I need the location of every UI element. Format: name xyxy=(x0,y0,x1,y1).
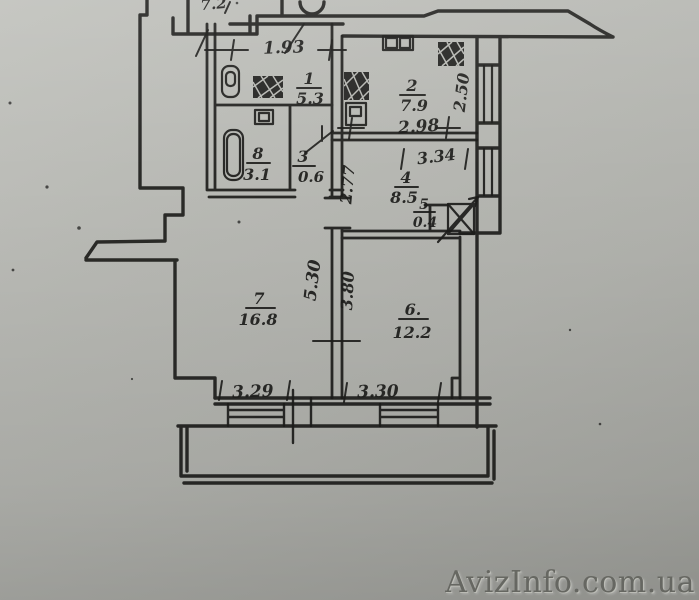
room-2-number: 2 xyxy=(405,76,417,95)
dim-kitchen-width: 2.98 xyxy=(396,116,440,139)
sink-icon xyxy=(255,110,273,124)
right-wall-window-glazing xyxy=(484,66,492,195)
dim-room6-depth: 3.80 xyxy=(337,271,358,311)
room-5-area: 0.4 xyxy=(413,215,437,231)
room-3-area: 0.6 xyxy=(298,168,325,186)
dim-room4-depth: 2.77 xyxy=(336,164,358,205)
bathtub-icon xyxy=(224,130,243,180)
room-5-number: 5 xyxy=(419,197,429,213)
dim-room6-width: 3.30 xyxy=(357,382,399,403)
floor-plan: 7.2 1 5.3 2 7.9 8 3.1 3 0.6 4 8.5 5 0.4 … xyxy=(0,0,699,600)
room-4-number: 4 xyxy=(400,168,411,187)
scanned-floor-plan-photo: 7.2 1 5.3 2 7.9 8 3.1 3 0.6 4 8.5 5 0.4 … xyxy=(0,0,699,600)
dim-room7-depth: 5.30 xyxy=(301,258,326,302)
room-6-area: 12.2 xyxy=(393,323,432,342)
bottom-wall-and-balcony xyxy=(178,398,496,483)
dim-room7-width: 3.29 xyxy=(232,381,274,402)
room-2-area: 7.9 xyxy=(400,96,428,115)
labels: 7.2 1 5.3 2 7.9 8 3.1 3 0.6 4 8.5 5 0.4 … xyxy=(200,0,474,403)
dim-entry-width: 1.93 xyxy=(263,37,305,58)
dim-room4-width: 3.34 xyxy=(416,145,457,169)
toilet-icon xyxy=(222,66,239,97)
room-4-area: 8.5 xyxy=(389,188,418,207)
room-8-area: 3.1 xyxy=(243,165,271,184)
kitchen-cabinet-icon xyxy=(346,103,366,125)
room-8-number: 8 xyxy=(251,144,263,163)
room-6-number: 6. xyxy=(405,300,422,319)
dim-kitchen-depth: 2.50 xyxy=(450,72,474,114)
room-1-number: 1 xyxy=(303,69,314,88)
stamp-circle xyxy=(300,2,324,14)
stove-icon xyxy=(438,42,464,66)
vent-shaft-icon xyxy=(253,76,283,98)
room-1-area: 5.3 xyxy=(296,89,324,108)
room-3-number: 3 xyxy=(297,147,308,166)
vent-shaft-icon xyxy=(344,72,369,100)
room-7-number: 7 xyxy=(253,289,264,308)
corner-label: 7.2 xyxy=(200,0,228,14)
kitchen-sink-icon xyxy=(383,36,413,50)
scan-specks xyxy=(9,2,602,426)
watermark: AvizInfo.com.ua xyxy=(445,565,695,600)
room-7-area: 16.8 xyxy=(239,310,278,329)
